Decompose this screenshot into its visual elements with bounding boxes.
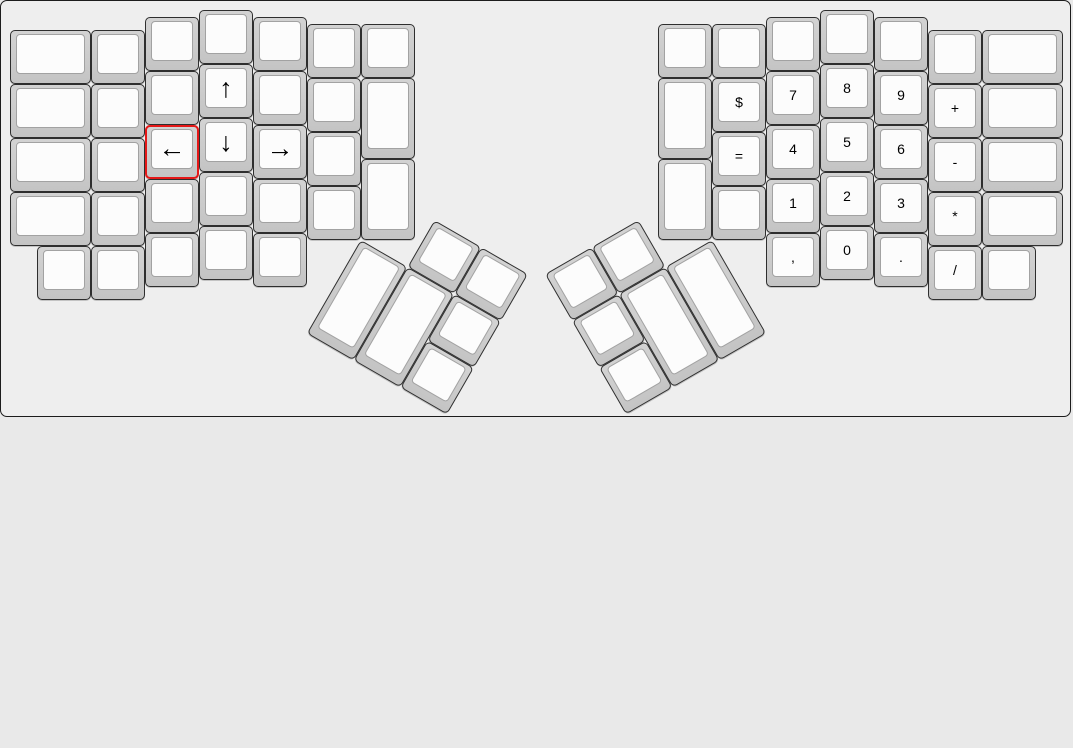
blank-keycap — [599, 226, 655, 282]
keyboard-canvas: ←↑↓→$=741,8520963.+-*/ — [0, 0, 1071, 417]
